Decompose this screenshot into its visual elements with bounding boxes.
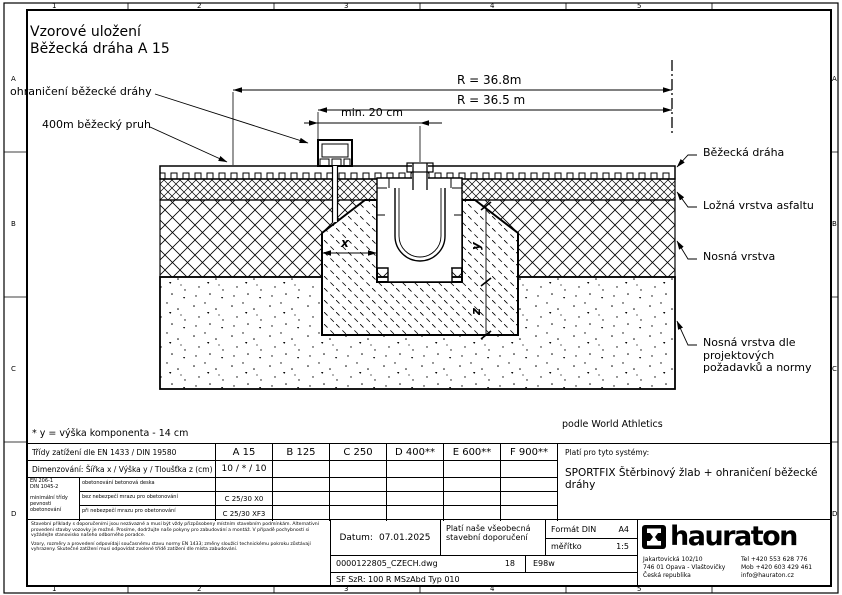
empty-cell [444, 506, 501, 521]
empty-cell [444, 461, 501, 478]
note-line1: Platí naše všeobecná [446, 524, 545, 533]
zone-col-1: 1 [52, 2, 56, 10]
dim-radius-outer: R = 36.8m [457, 74, 521, 88]
company-address: Jakartovická 102/10 746 01 Opava - Vlašt… [643, 556, 725, 579]
systems-header: Platí pro tyto systémy: [558, 444, 830, 457]
zone-row-d: D [11, 510, 16, 518]
class-d400: D 400** [387, 444, 444, 461]
file-name: 0000122805_CZECH.dwg [336, 559, 438, 568]
sheet-title-line1: Vzorové uložení [30, 24, 141, 40]
address-line1: Jakartovická 102/10 [643, 556, 725, 564]
empty-cell [501, 492, 558, 506]
zone-col-2b: 2 [197, 585, 201, 593]
empty-cell [273, 492, 330, 506]
empty-cell [273, 478, 330, 492]
date-label: Datum: [339, 533, 372, 543]
load-class-table: Třídy zatížení dle EN 1433 / DIN 19580 A… [27, 443, 831, 520]
concrete-norm-note: minimální třídy pevnosti obetonování [28, 491, 79, 514]
empty-cell [273, 506, 330, 521]
empty-cell [330, 492, 387, 506]
system-code-cell: SF SzR: 100 R MSzAbd Typ 010 [330, 572, 637, 586]
empty-cell [387, 461, 444, 478]
company-contacts: Tel +420 553 628 776 Mob +420 603 429 46… [741, 556, 812, 579]
file-cell: 0000122805_CZECH.dwg 18 [330, 555, 525, 572]
contact-mob: Mob +420 603 429 461 [741, 564, 812, 572]
technical-drawing-sheet: 1 2 3 4 5 1 2 3 4 5 A B C D A B C D Vzor… [0, 0, 842, 595]
zone-col-5b: 5 [637, 585, 641, 593]
zone-col-2: 2 [197, 2, 201, 10]
label-track-edging: ohraničení běžecké dráhy [10, 86, 152, 99]
address-line3: Česká republika [643, 572, 725, 580]
dim-y-label: y [470, 242, 484, 250]
code-cell: E98w [525, 555, 637, 572]
footnote-y-height: * y = výška komponenta - 14 cm [32, 429, 188, 440]
label-running-track: Běžecká dráha [703, 147, 784, 160]
hauraton-wordmark: hauraton [670, 523, 797, 550]
address-line2: 746 01 Opava - Vlaštovičky [643, 564, 725, 572]
zone-col-3: 3 [344, 2, 348, 10]
dim-min-20cm: min. 20 cm [330, 107, 414, 120]
hauraton-logo-icon [642, 525, 666, 549]
recommendation-note-cell: Platí naše všeobecná stavební doporučení [440, 520, 545, 555]
contact-tel: Tel +420 553 628 776 [741, 556, 812, 564]
drawing-code: E98w [533, 559, 555, 568]
zone-row-a-r: A [832, 75, 837, 83]
label-400m-lane: 400m běžecký pruh [42, 119, 151, 132]
empty-cell [444, 492, 501, 506]
label-asphalt-layer: Ložná vrstva asfaltu [703, 200, 814, 213]
empty-cell [273, 461, 330, 478]
systems-cell: Platí pro tyto systémy: SPORTFIX Štěrbin… [558, 444, 830, 521]
empty-cell [330, 506, 387, 521]
date-cell: Datum: 07.01.2025 [330, 520, 440, 555]
concrete-row3-a15: C 25/30 XF3 [216, 506, 273, 521]
zone-col-4b: 4 [490, 585, 494, 593]
concrete-row3-label: při nebezpečí mrazu pro obetonování [80, 506, 216, 521]
load-class-header-cell: Třídy zatížení dle EN 1433 / DIN 19580 [28, 444, 216, 461]
disclaimer-paragraph-1: Stavební příklady s doporučeními jsou ne… [31, 522, 326, 539]
empty-cell [444, 478, 501, 492]
format-label: Formát DIN [551, 525, 596, 534]
zone-row-c-r: C [832, 365, 837, 373]
concrete-row2-a15: C 25/30 X0 [216, 492, 273, 506]
empty-cell [501, 506, 558, 521]
system-code: SF SzR: 100 R MSzAbd Typ 010 [336, 575, 460, 584]
empty-cell [387, 478, 444, 492]
zone-row-a: A [11, 75, 16, 83]
format-value: A4 [618, 525, 629, 534]
scale-label: měřítko [551, 542, 582, 551]
title-block: Stavební příklady s doporučeními jsou ne… [27, 520, 831, 586]
dimensioning-a15-value: 10 / * / 10 [216, 461, 273, 478]
zone-row-d-r: D [832, 510, 837, 518]
zone-col-3b: 3 [344, 585, 348, 593]
scale-value: 1:5 [616, 542, 629, 551]
sheet-number: 18 [505, 559, 515, 568]
contact-email: info@hauraton.cz [741, 572, 812, 580]
sheet-title-line2: Běžecká dráha A 15 [30, 41, 170, 57]
class-b125: B 125 [273, 444, 330, 461]
concrete-row1-label: obetonování betonová deska [80, 478, 216, 492]
date-value: 07.01.2025 [379, 533, 431, 543]
zone-row-c: C [11, 365, 16, 373]
class-e600: E 600** [444, 444, 501, 461]
empty-cell [330, 461, 387, 478]
class-a15: A 15 [216, 444, 273, 461]
empty-cell [387, 506, 444, 521]
dimensioning-label-cell: Dimenzování: Šířka x / Výška y / Tloušťk… [28, 461, 216, 478]
class-c250: C 250 [330, 444, 387, 461]
concrete-norm-cell: EN 206-1 DIN 1045-2 minimální třídy pevn… [28, 478, 80, 521]
company-block: hauraton Jakartovická 102/10 746 01 Opav… [637, 520, 831, 586]
scale-cell: měřítko 1:5 [545, 538, 637, 555]
label-subbase-layer: Nosná vrstva dle projektových požadavků … [703, 337, 815, 375]
world-athletics-note: podle World Athletics [562, 420, 663, 431]
disclaimer-paragraph-2: Vzory, rozměry a provedení odpovídají so… [31, 542, 326, 553]
disclaimer-block: Stavební příklady s doporučeními jsou ne… [27, 520, 330, 586]
zone-col-5: 5 [637, 2, 641, 10]
dim-x-label: x [341, 237, 349, 251]
concrete-row2-label: bez nebezpečí mrazu pro obetonování [80, 492, 216, 506]
empty-cell [330, 478, 387, 492]
dim-radius-inner: R = 36.5 m [457, 94, 525, 108]
zone-row-b: B [11, 220, 16, 228]
systems-value: SPORTFIX Štěrbinový žlab + ohraničení bě… [558, 457, 830, 491]
zone-col-1b: 1 [52, 585, 56, 593]
label-base-layer: Nosná vrstva [703, 251, 775, 264]
format-cell: Formát DIN A4 [545, 520, 637, 538]
zone-col-4: 4 [490, 2, 494, 10]
concrete-row1-a15 [216, 478, 273, 492]
zone-row-b-r: B [832, 220, 837, 228]
dim-z-label: z [470, 308, 484, 315]
class-f900: F 900** [501, 444, 558, 461]
empty-cell [501, 461, 558, 478]
empty-cell [387, 492, 444, 506]
empty-cell [501, 478, 558, 492]
note-line2: stavební doporučení [446, 533, 545, 542]
